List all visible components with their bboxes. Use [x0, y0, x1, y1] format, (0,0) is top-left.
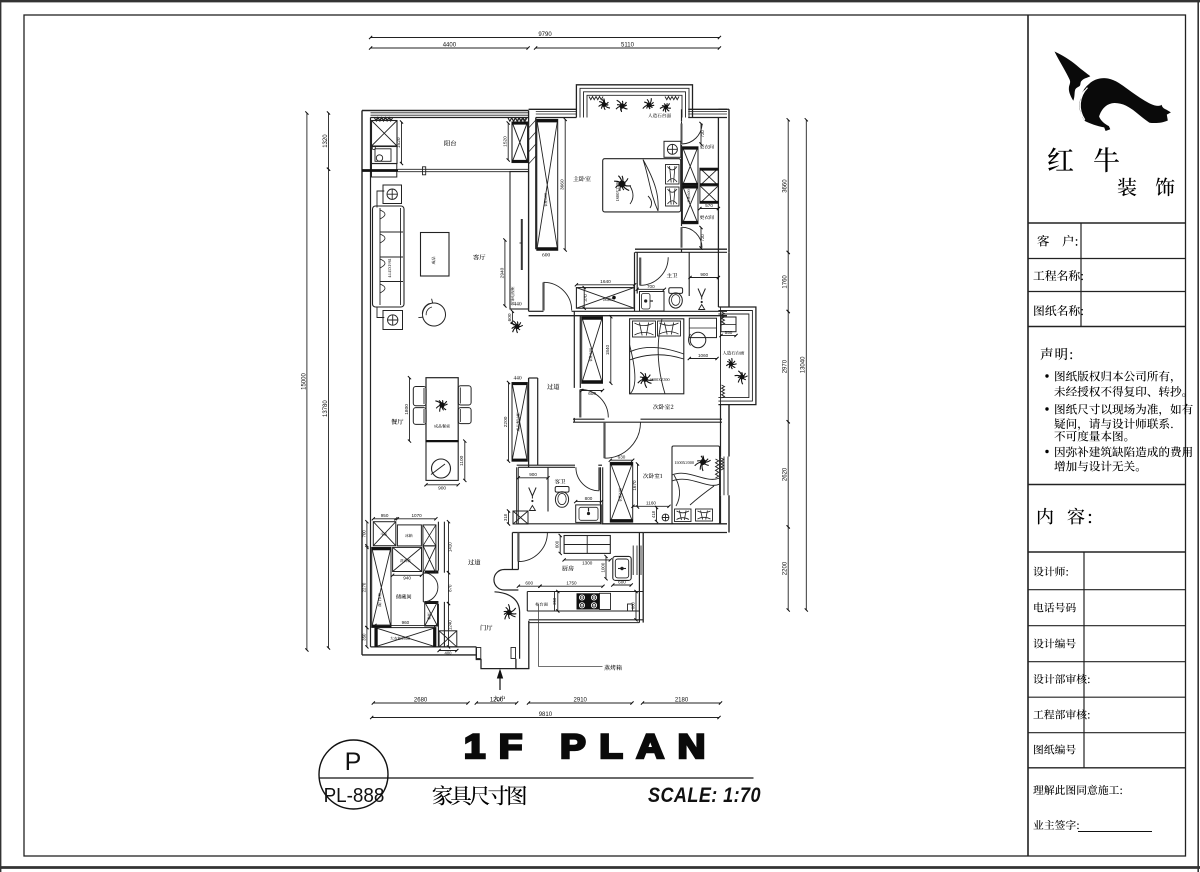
svg-text:9790: 9790: [538, 32, 552, 38]
svg-text:9810: 9810: [539, 712, 553, 718]
svg-text:2680: 2680: [414, 697, 428, 703]
svg-text:1070: 1070: [411, 513, 422, 518]
svg-text:900: 900: [700, 272, 708, 277]
svg-text:400: 400: [445, 651, 453, 656]
svg-text:350: 350: [361, 633, 366, 641]
svg-text:900: 900: [529, 472, 537, 477]
svg-text:900: 900: [438, 485, 446, 491]
svg-text:600: 600: [525, 581, 533, 586]
svg-text:960: 960: [402, 620, 410, 625]
svg-text:1410: 1410: [447, 542, 452, 552]
svg-text:2270: 2270: [361, 582, 366, 592]
svg-text:1060: 1060: [698, 353, 709, 358]
svg-text:1160: 1160: [646, 501, 656, 506]
svg-text:PL-888: PL-888: [324, 784, 385, 807]
svg-text:600: 600: [618, 580, 626, 585]
svg-text:370: 370: [583, 294, 588, 302]
svg-text:4400: 4400: [443, 42, 457, 48]
svg-text:2940: 2940: [499, 267, 505, 278]
svg-text:1F PLAN: 1F PLAN: [464, 727, 719, 765]
svg-text:1750: 1750: [566, 581, 577, 586]
svg-text:800: 800: [585, 496, 593, 501]
svg-text:318: 318: [503, 513, 508, 521]
svg-text:700: 700: [647, 284, 655, 289]
svg-text:950: 950: [381, 513, 389, 518]
svg-text:1200: 1200: [490, 697, 504, 703]
svg-text:13780: 13780: [323, 400, 329, 417]
svg-text:15000: 15000: [301, 372, 307, 389]
svg-text:600: 600: [555, 540, 560, 548]
svg-text:720: 720: [700, 130, 705, 138]
svg-text:1240: 1240: [447, 620, 452, 630]
svg-text:870: 870: [447, 584, 452, 592]
svg-text:570: 570: [705, 203, 713, 208]
svg-text:1800: 1800: [404, 404, 410, 415]
svg-text:720: 720: [700, 234, 705, 242]
svg-text:550: 550: [725, 330, 733, 335]
svg-text:1300: 1300: [582, 560, 593, 565]
svg-text:940: 940: [403, 576, 411, 581]
svg-text:2620: 2620: [783, 467, 789, 481]
svg-text:1760: 1760: [783, 275, 789, 289]
svg-text:630: 630: [618, 455, 626, 460]
svg-text:1320: 1320: [323, 134, 329, 148]
svg-text:600: 600: [588, 391, 596, 396]
svg-text:SCALE: 1:70: SCALE: 1:70: [648, 784, 761, 808]
svg-text:600: 600: [507, 313, 513, 321]
svg-text:2970: 2970: [783, 359, 789, 373]
svg-text:1520: 1520: [396, 137, 402, 148]
svg-text:1840: 1840: [605, 344, 610, 355]
svg-text:700: 700: [361, 530, 366, 538]
svg-text:250: 250: [552, 597, 557, 605]
svg-text:3660: 3660: [783, 179, 789, 193]
svg-text:1640: 1640: [600, 279, 611, 285]
svg-text:418: 418: [651, 510, 656, 518]
svg-text:1000: 1000: [600, 562, 605, 572]
svg-text:2200: 2200: [783, 561, 789, 575]
svg-text:1670: 1670: [632, 480, 637, 491]
svg-text:1520: 1520: [503, 136, 509, 147]
svg-text:P: P: [345, 748, 362, 776]
svg-text:2200: 2200: [503, 416, 509, 427]
svg-text:2910: 2910: [574, 697, 588, 703]
svg-text:13040: 13040: [801, 356, 807, 373]
svg-text:2180: 2180: [675, 697, 689, 703]
svg-text:1100: 1100: [459, 455, 465, 466]
svg-text:3660: 3660: [560, 179, 566, 190]
svg-text:5110: 5110: [621, 42, 635, 48]
